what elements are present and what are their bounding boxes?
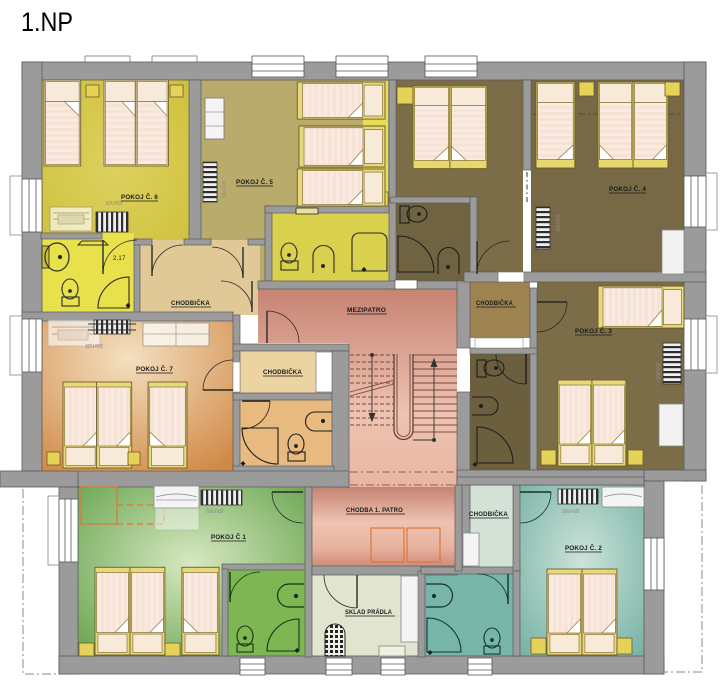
svg-text:POKOJ Č. 6: POKOJ Č. 6 [121,192,158,201]
svg-text:MEZIPATRO: MEZIPATRO [347,307,386,314]
svg-text:štendr: štendr [84,342,103,349]
svg-text:POKOJ Č. 4: POKOJ Č. 4 [609,184,646,193]
svg-text:štendr: štendr [221,179,228,198]
svg-text:SKLAD PRÁDLA: SKLAD PRÁDLA [345,607,392,616]
svg-text:1.NP: 1.NP [21,7,73,37]
svg-text:štendr: štendr [655,361,662,380]
svg-text:štendr: štendr [554,214,561,233]
svg-text:POKOJ Č. 3: POKOJ Č. 3 [575,326,612,335]
svg-text:2.17: 2.17 [113,256,126,262]
svg-text:štendr: štendr [562,508,581,515]
svg-text:POKOJ Č 1: POKOJ Č 1 [211,532,246,541]
svg-text:CHODBIČKA: CHODBIČKA [476,298,513,307]
svg-text:POKOJ Č. 7: POKOJ Č. 7 [136,364,173,373]
svg-text:POKOJ Č. 5: POKOJ Č. 5 [236,177,273,186]
svg-text:CHODBA 1. PATRO: CHODBA 1. PATRO [346,507,403,514]
svg-text:CHODBIČKA: CHODBIČKA [263,367,302,376]
svg-text:POKOJ Č. 2: POKOJ Č. 2 [565,543,602,552]
svg-text:CHODBIČKA: CHODBIČKA [171,298,210,307]
svg-text:štendr: štendr [206,508,225,515]
svg-text:CHODBIČKA: CHODBIČKA [469,509,508,518]
